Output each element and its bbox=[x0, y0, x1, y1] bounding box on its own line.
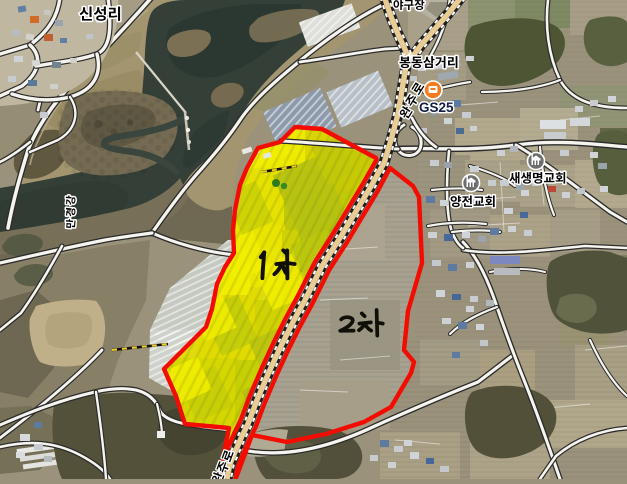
svg-text:GS25: GS25 bbox=[419, 100, 454, 115]
